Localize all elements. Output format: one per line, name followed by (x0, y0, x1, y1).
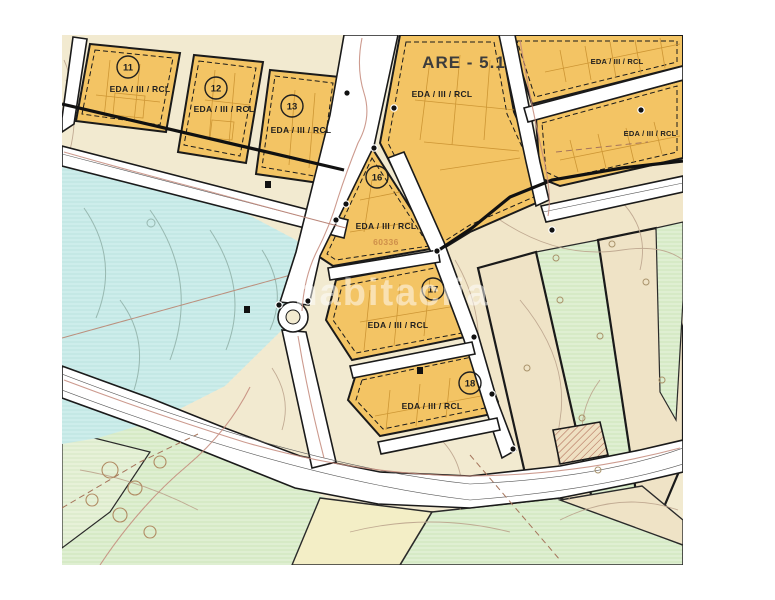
are-main-zone: EDA / III / RCL (412, 89, 473, 99)
watermark-text: habitaclia (294, 272, 489, 314)
parcel-13-number: 13 (287, 102, 298, 113)
parcel-16-zone: EDA / III / RCL (356, 221, 417, 231)
parcel-18-number: 18 (465, 379, 476, 390)
parcel-13-zone: EDA / III / RCL (271, 125, 332, 135)
zoning-map-image[interactable]: ARE - 5.1 11 12 13 16 17 18 EDA / III / … (0, 0, 775, 600)
parcel-16-number: 16 (372, 173, 383, 184)
parcel-17-zone: EDA / III / RCL (368, 320, 429, 330)
parcel-12-number: 12 (211, 84, 222, 95)
parcel-12-zone: EDA / III / RCL (194, 104, 255, 114)
ne-upper-zone: EDA / III / RCL (591, 57, 644, 66)
parcel-16-ref: 60336 (373, 237, 399, 247)
map-canvas[interactable]: ARE - 5.1 11 12 13 16 17 18 EDA / III / … (0, 0, 775, 600)
ne-lower-zone: EDA / III / RCL (624, 129, 677, 138)
parcel-18-zone: EDA / III / RCL (402, 401, 463, 411)
area-title: ARE - 5.1 (422, 53, 506, 72)
parcel-11-number: 11 (123, 63, 134, 74)
parcel-11-zone: EDA / III / RCL (110, 84, 171, 94)
